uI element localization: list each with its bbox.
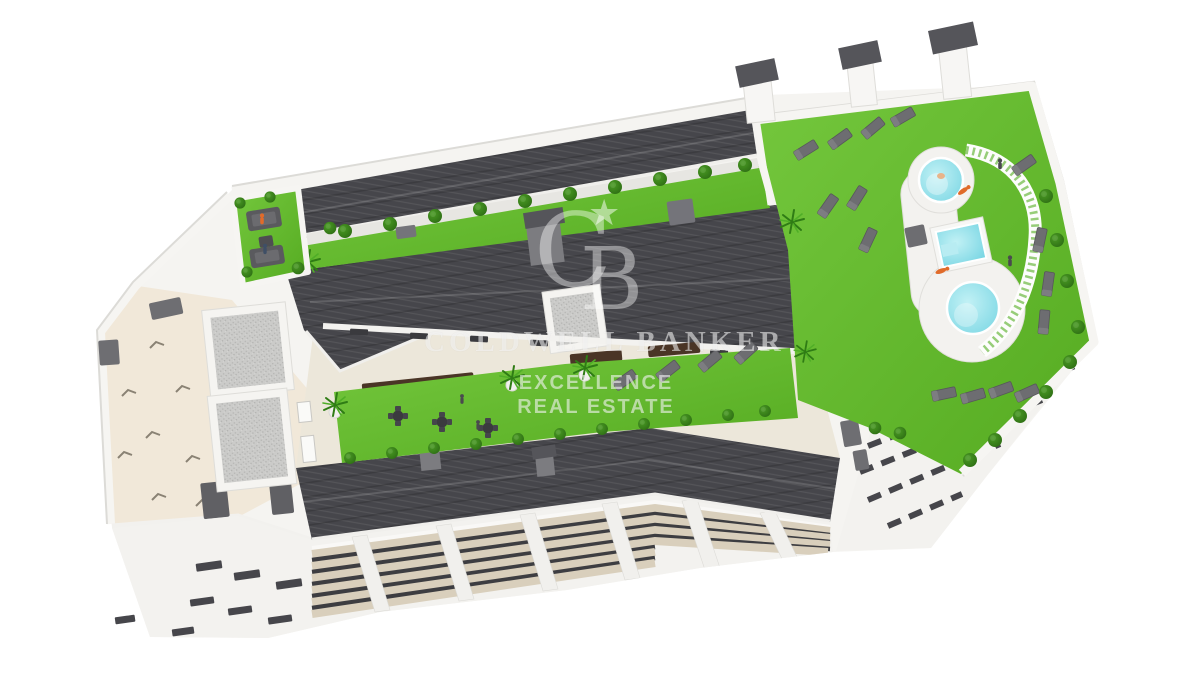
person bbox=[476, 420, 480, 430]
jacuzzi-pool bbox=[919, 158, 963, 202]
vent-box bbox=[666, 198, 695, 225]
person bbox=[263, 244, 267, 254]
round-pool bbox=[947, 282, 999, 334]
person bbox=[460, 394, 464, 404]
render-canvas: C ★ B COLDWELL BANKER EXCELLENCE REAL ES… bbox=[0, 0, 1200, 675]
person bbox=[260, 213, 264, 224]
deck-planter bbox=[904, 224, 928, 248]
person-in-jacuzzi bbox=[937, 173, 945, 179]
building-render bbox=[0, 0, 1200, 675]
service-cores bbox=[202, 302, 297, 492]
